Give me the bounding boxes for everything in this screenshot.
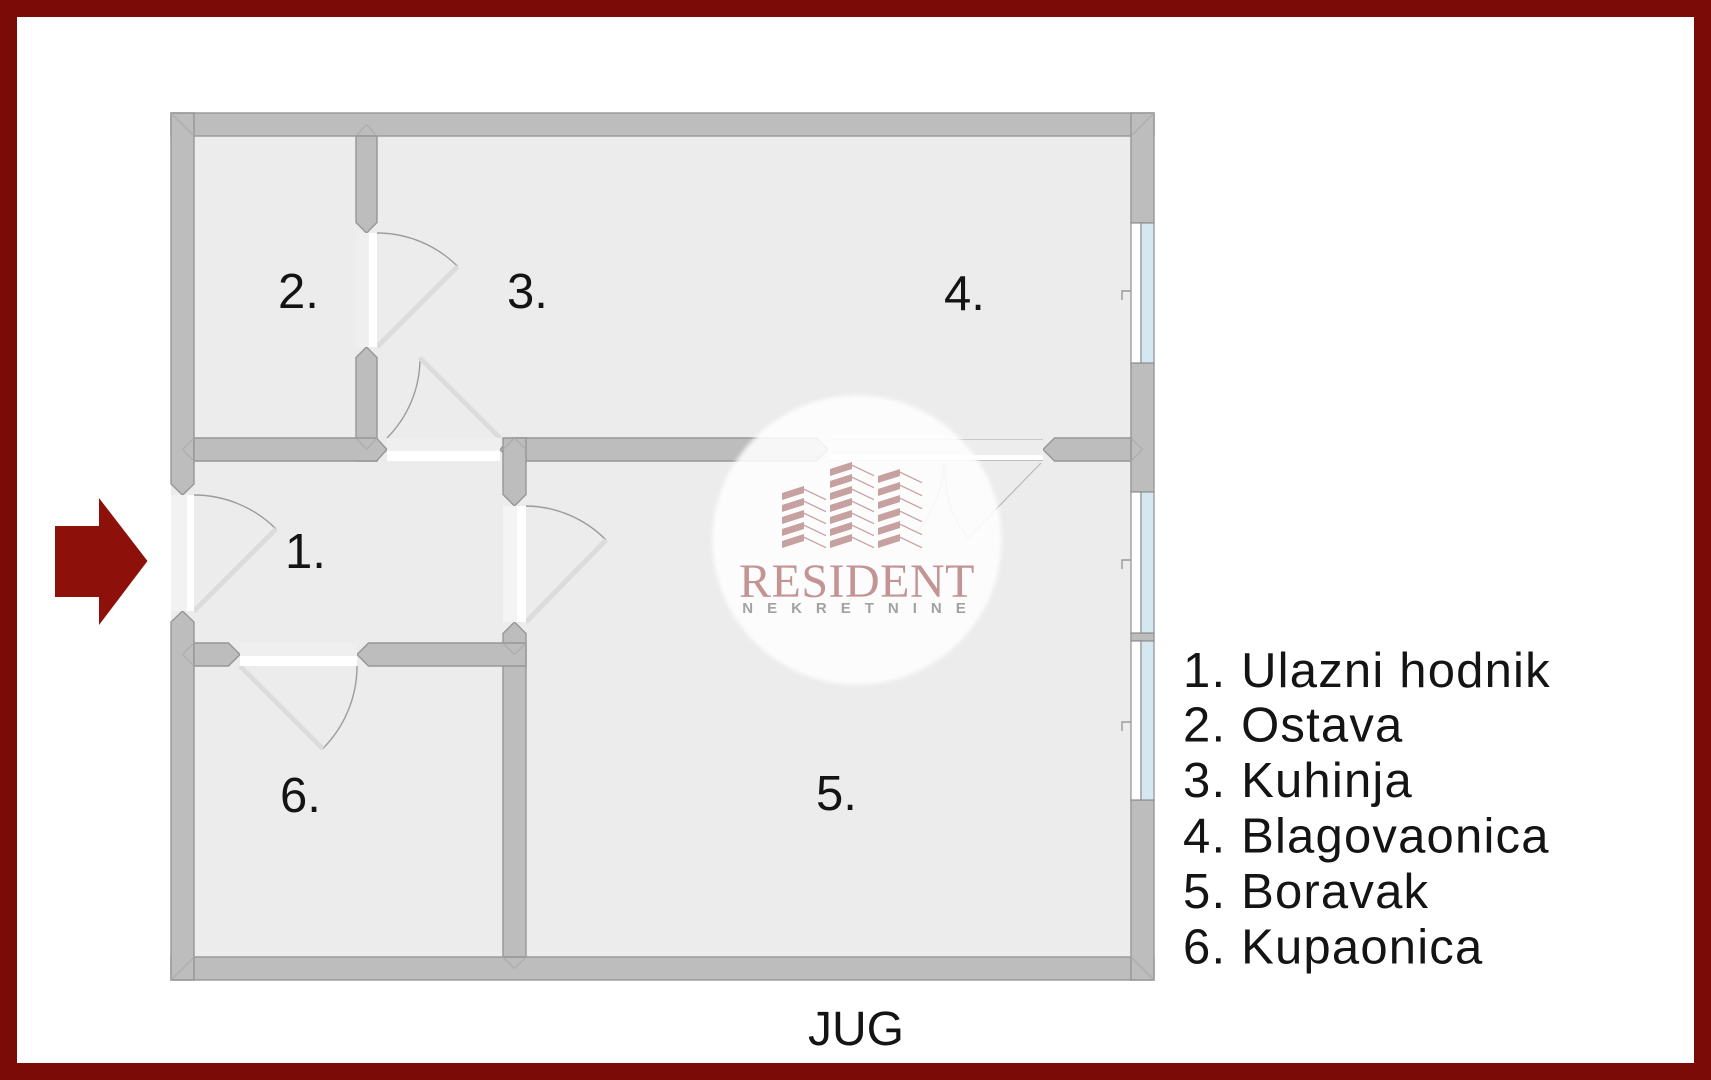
svg-text:2. Ostava: 2. Ostava: [1183, 699, 1404, 753]
svg-text:6. Kupaonica: 6. Kupaonica: [1183, 921, 1483, 975]
svg-text:NEKRETNINE: NEKRETNINE: [742, 600, 980, 617]
svg-text:5.: 5.: [816, 767, 857, 821]
svg-text:5. Boravak: 5. Boravak: [1183, 865, 1429, 919]
svg-text:2.: 2.: [278, 265, 319, 319]
svg-text:3.: 3.: [507, 265, 548, 319]
svg-text:6.: 6.: [280, 769, 321, 823]
svg-text:JUG: JUG: [808, 1003, 904, 1056]
svg-text:4.: 4.: [944, 267, 985, 321]
svg-text:1. Ulazni hodnik: 1. Ulazni hodnik: [1183, 644, 1551, 698]
svg-text:1.: 1.: [285, 525, 326, 579]
svg-text:3. Kuhinja: 3. Kuhinja: [1183, 754, 1413, 808]
svg-text:4. Blagovaonica: 4. Blagovaonica: [1183, 810, 1550, 864]
